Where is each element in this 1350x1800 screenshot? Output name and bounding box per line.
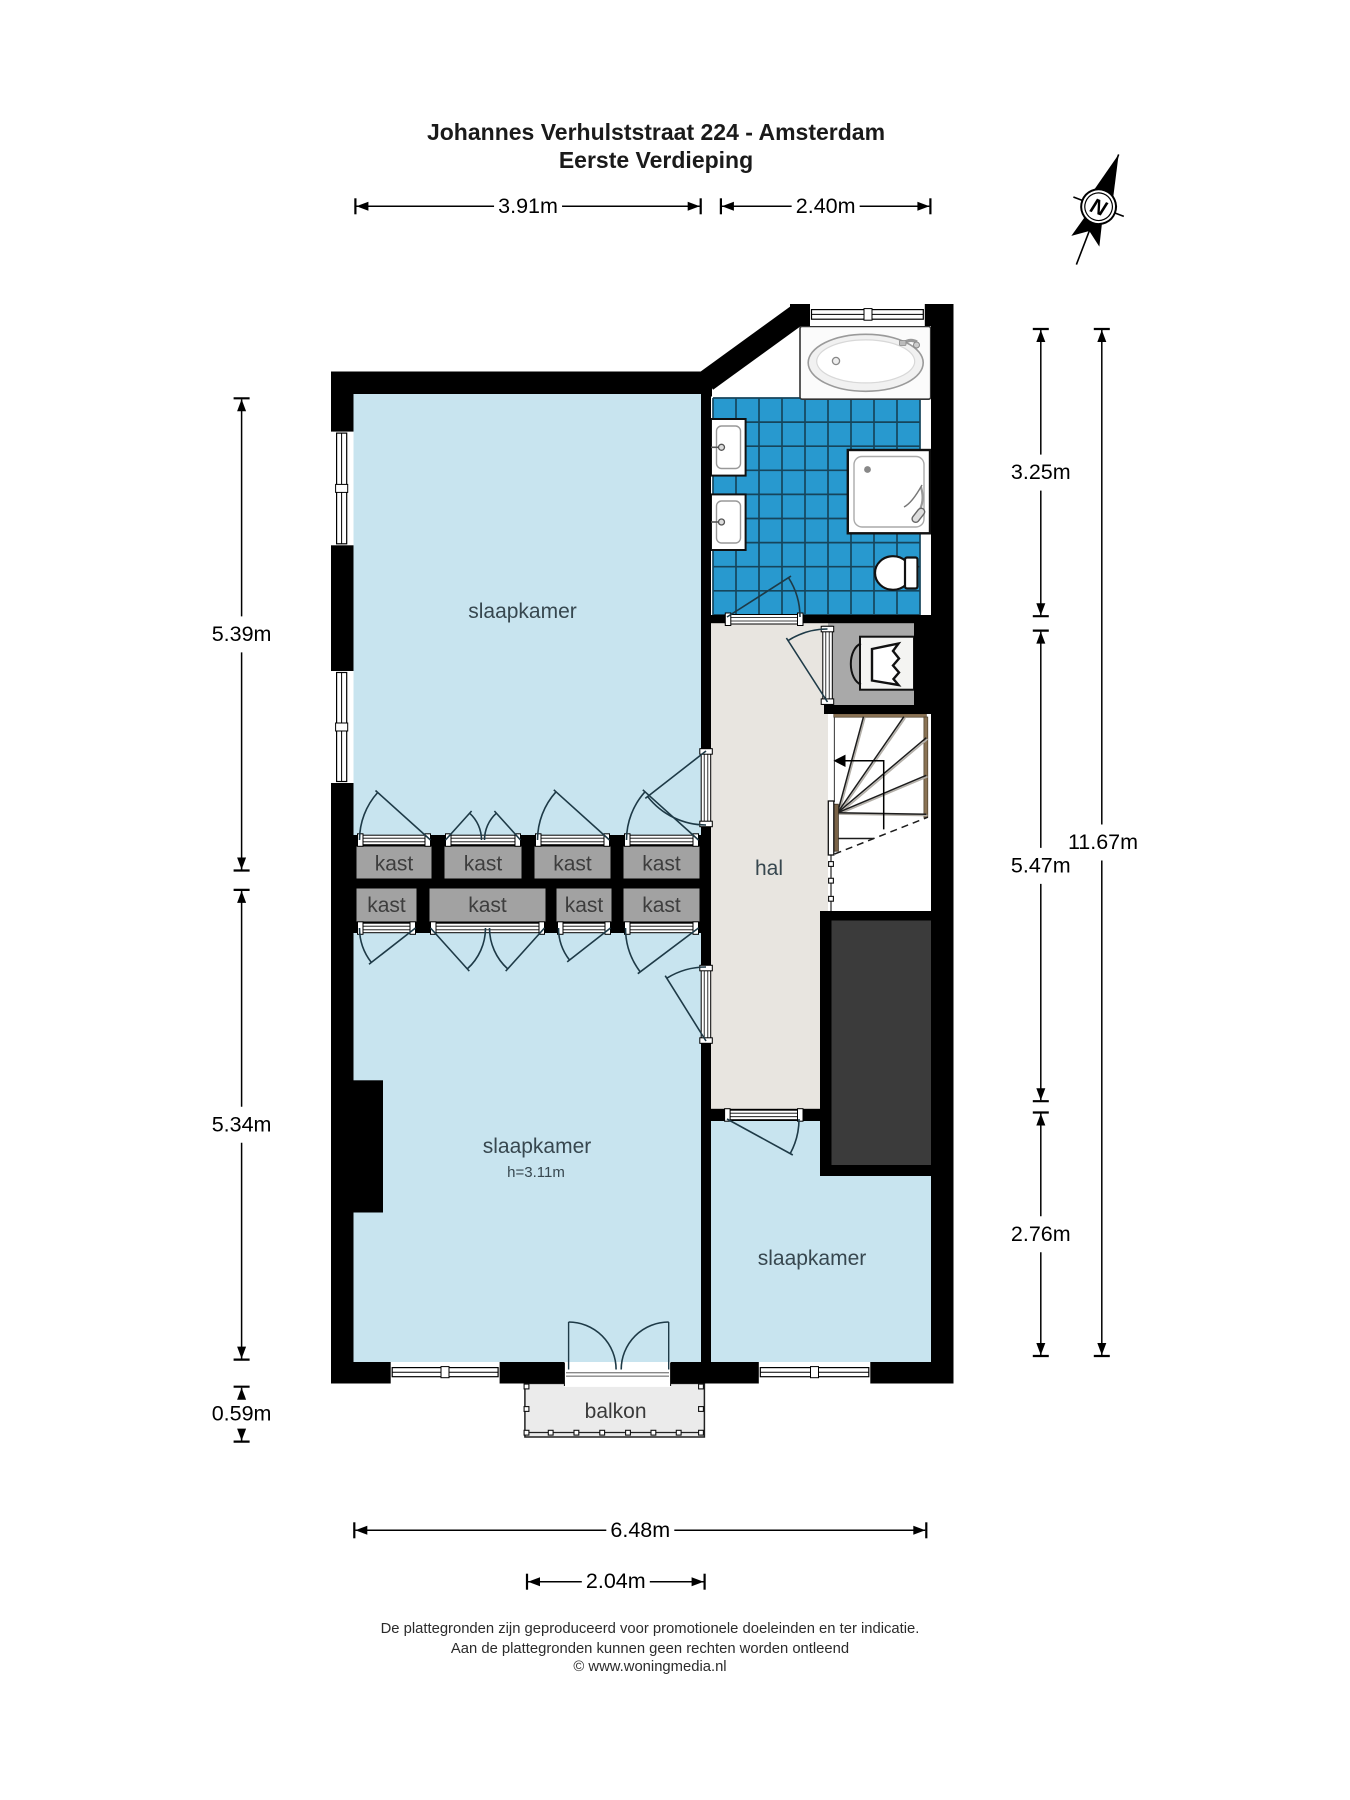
svg-text:balkon: balkon bbox=[585, 1400, 647, 1423]
svg-text:Aan de plattegronden kunnen ge: Aan de plattegronden kunnen geen rechten… bbox=[451, 1641, 849, 1657]
svg-text:slaapkamer: slaapkamer bbox=[758, 1247, 867, 1270]
svg-text:5.34m: 5.34m bbox=[212, 1112, 272, 1136]
svg-text:kast: kast bbox=[367, 894, 406, 917]
svg-text:slaapkamer: slaapkamer bbox=[483, 1135, 592, 1158]
svg-text:Johannes Verhulststraat 224 -: Johannes Verhulststraat 224 - Amsterdam bbox=[427, 119, 885, 145]
svg-text:kast: kast bbox=[464, 853, 503, 876]
svg-text:5.47m: 5.47m bbox=[1011, 853, 1071, 877]
svg-text:kast: kast bbox=[565, 894, 604, 917]
svg-text:kast: kast bbox=[468, 894, 507, 917]
svg-text:kast: kast bbox=[642, 853, 681, 876]
svg-text:5.39m: 5.39m bbox=[212, 622, 272, 646]
svg-text:slaapkamer: slaapkamer bbox=[468, 600, 577, 623]
svg-text:2.76m: 2.76m bbox=[1011, 1222, 1071, 1246]
svg-text:h=3.11m: h=3.11m bbox=[507, 1164, 565, 1181]
svg-text:© www.woningmedia.nl: © www.woningmedia.nl bbox=[573, 1659, 726, 1675]
svg-text:kast: kast bbox=[642, 894, 681, 917]
svg-text:3.91m: 3.91m bbox=[498, 194, 558, 218]
svg-text:2.40m: 2.40m bbox=[796, 194, 856, 218]
svg-text:2.04m: 2.04m bbox=[586, 1569, 646, 1593]
svg-text:3.25m: 3.25m bbox=[1011, 460, 1071, 484]
svg-text:6.48m: 6.48m bbox=[610, 1518, 670, 1542]
svg-text:kast: kast bbox=[553, 853, 592, 876]
svg-text:11.67m: 11.67m bbox=[1068, 830, 1138, 854]
svg-text:kast: kast bbox=[375, 853, 414, 876]
svg-text:0.59m: 0.59m bbox=[212, 1402, 272, 1426]
svg-text:De plattegronden zijn geproduc: De plattegronden zijn geproduceerd voor … bbox=[381, 1621, 920, 1637]
svg-text:hal: hal bbox=[755, 857, 783, 880]
svg-text:Eerste Verdieping: Eerste Verdieping bbox=[559, 147, 753, 173]
